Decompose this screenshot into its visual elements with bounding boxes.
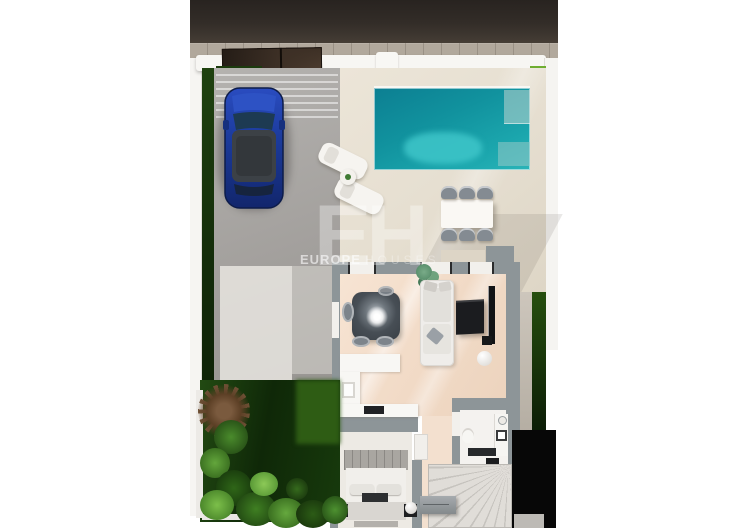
toilet xyxy=(462,428,474,443)
bed-blanket xyxy=(346,502,406,520)
kitchen-bedroom-wall xyxy=(332,416,418,432)
bathroom-door xyxy=(452,412,460,436)
garden-bush xyxy=(322,496,348,524)
washbasin xyxy=(496,430,507,441)
car xyxy=(222,86,286,210)
car-windshield xyxy=(233,112,275,130)
floor-lamp xyxy=(477,351,492,366)
road xyxy=(190,0,558,43)
pool-steps xyxy=(504,90,530,124)
floor-plan-render: EH EUROPEHOUSES xyxy=(0,0,756,528)
car-mirror-left xyxy=(223,120,229,130)
media-box xyxy=(482,336,492,345)
watermark-brand: EUROPE xyxy=(300,252,361,267)
perimeter-wall-right xyxy=(544,58,558,350)
pool-light-reflection xyxy=(404,132,482,164)
garden-bush xyxy=(250,472,278,496)
garden-bush xyxy=(200,490,234,520)
dining-chair xyxy=(376,336,394,347)
outdoor-chair xyxy=(459,186,475,199)
kitchen-counter xyxy=(340,354,400,372)
garden-bush xyxy=(286,478,308,500)
patio-light-slab xyxy=(220,266,292,384)
sofa-cushion xyxy=(423,288,451,322)
dining-chair xyxy=(342,302,354,322)
bath-mat xyxy=(468,448,496,456)
window xyxy=(332,302,339,338)
dining-chair xyxy=(378,286,394,296)
watermark-brand-suffix: HOUSES xyxy=(365,253,440,267)
car-hood xyxy=(232,93,276,112)
bedside-lamp xyxy=(405,502,417,514)
wardrobe xyxy=(414,434,428,460)
watermark-text: EUROPEHOUSES xyxy=(300,251,480,269)
bed-bench xyxy=(354,521,398,527)
bedroom-wall-right xyxy=(412,460,422,528)
cooktop xyxy=(364,406,384,414)
dining-chair xyxy=(352,336,370,347)
side-table xyxy=(340,169,356,185)
outdoor-chair xyxy=(477,186,493,199)
outdoor-chair xyxy=(459,228,475,241)
car-mirror-right xyxy=(279,120,285,130)
void-edge xyxy=(514,514,544,528)
bed-headboard xyxy=(344,450,408,470)
pool-steps-lower xyxy=(498,142,530,166)
ceiling-light-glare xyxy=(366,306,388,328)
shower-head xyxy=(498,416,507,425)
watermark-monogram: EH xyxy=(314,196,454,282)
outdoor-chair xyxy=(477,228,493,241)
tv-cabinet xyxy=(456,299,484,334)
sideboard xyxy=(420,496,456,514)
lawn-highlight xyxy=(296,380,340,444)
kitchen-sink xyxy=(342,382,355,398)
